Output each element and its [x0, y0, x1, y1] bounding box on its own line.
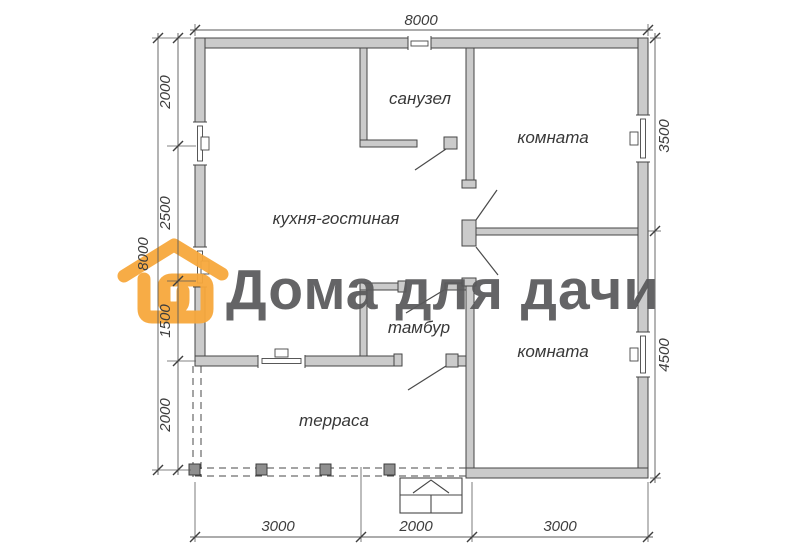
door-jamb	[446, 354, 458, 367]
room-label-bathroom: санузел	[389, 89, 451, 108]
window-right-2	[630, 332, 650, 377]
dim-label-top-total: 8000	[404, 12, 438, 29]
window-pane	[262, 359, 301, 364]
terrace-post	[384, 464, 395, 475]
dim-label-right-1: 3500	[656, 119, 673, 153]
window-pane	[641, 119, 646, 158]
terrace-post	[189, 464, 200, 475]
door-leaf-room-top	[476, 190, 497, 220]
wall-bathroom-bottom	[360, 140, 417, 147]
room-label-kitchen-living: кухня-гостиная	[273, 209, 400, 228]
window-top-vent	[408, 36, 431, 50]
door-post	[462, 220, 476, 246]
window-kitchen-terrace	[258, 349, 305, 368]
wall-bottom-b	[305, 356, 400, 366]
door-leaf-bathroom	[415, 149, 446, 170]
dim-label-bottom-2: 2000	[398, 518, 433, 535]
stairs-group	[400, 478, 462, 513]
brand-watermark-text: Дома для дачи	[226, 258, 659, 322]
window-pane	[641, 336, 646, 373]
wall-bottom-a	[195, 356, 258, 366]
dim-label-left-3: 1500	[157, 304, 174, 338]
room-label-terrace: терраса	[299, 411, 369, 430]
stairs-up-arrow	[413, 480, 449, 493]
dim-label-left-total: 8000	[135, 237, 152, 271]
room-label-room-top: комната	[517, 128, 588, 147]
dim-label-left-4: 2000	[157, 398, 174, 433]
window-left-1	[193, 122, 209, 165]
door-jamb	[394, 354, 402, 366]
door-jamb	[444, 137, 457, 149]
dim-label-bottom-3: 3000	[543, 518, 577, 535]
window-mullion	[630, 348, 638, 361]
wall-center-upper	[466, 48, 474, 182]
floor-plan-page: 8000 8000 2000 2500 1500 2000 3500 4500 …	[0, 0, 788, 557]
dim-label-bottom-1: 3000	[261, 518, 295, 535]
window-mullion	[275, 349, 288, 357]
door-leaf-entrance	[408, 366, 446, 390]
window-pane	[411, 41, 428, 46]
window-right-1	[630, 115, 650, 162]
dim-label-left-2: 2500	[157, 196, 174, 231]
terrace-post	[320, 464, 331, 475]
wall-rooms-divider	[474, 228, 638, 235]
window-mullion	[630, 132, 638, 145]
dim-label-right-2: 4500	[656, 338, 673, 372]
room-label-room-bottom: комната	[517, 342, 588, 361]
wall-bathroom-left	[360, 48, 367, 147]
wall-end-cap	[462, 180, 476, 188]
window-mullion	[201, 137, 209, 150]
dim-label-left-1: 2000	[157, 75, 174, 110]
floor-plan-canvas: 8000 8000 2000 2500 1500 2000 3500 4500 …	[0, 0, 788, 557]
terrace-post	[256, 464, 267, 475]
wall-extension-bottom	[466, 468, 648, 478]
